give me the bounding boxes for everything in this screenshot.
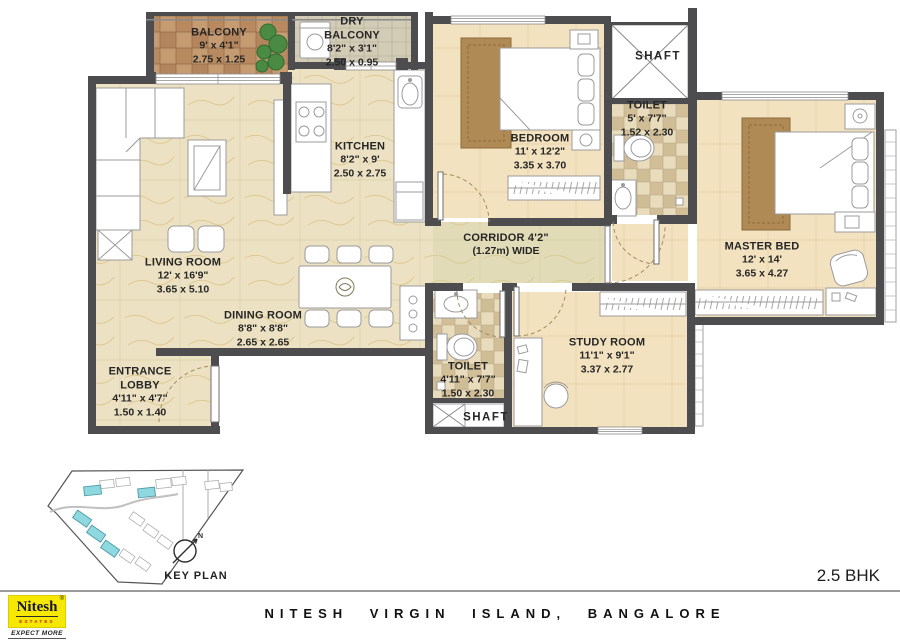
pillow	[852, 186, 868, 208]
master-bed-label: MASTER BED 12' x 14' 3.65 x 4.27	[725, 240, 800, 281]
kitchen-label: KITCHEN 8'2" x 9' 2.50 x 2.75	[334, 140, 387, 181]
room-name: DRY BALCONY	[314, 14, 390, 42]
door-leaf	[211, 366, 219, 422]
room-dim-metric: 3.37 x 2.77	[569, 363, 645, 376]
fridge-icon	[396, 182, 423, 220]
door-leaf	[605, 226, 610, 283]
dining-chair	[337, 246, 361, 263]
nitesh-logo: ® Nitesh ESTATES EXPECT MORE	[8, 595, 66, 639]
room-dim-imperial: 12' x 14'	[725, 254, 800, 267]
master-hall-floor	[612, 224, 688, 281]
room-dim-metric: 2.50 x 0.95	[314, 56, 390, 69]
corridor-width-note: (1.27m) WIDE	[463, 245, 549, 258]
room-dim-metric: 3.65 x 5.10	[145, 283, 221, 296]
dining-table	[299, 266, 391, 308]
logo-brand-text: Nitesh	[16, 600, 59, 617]
pouf	[168, 226, 194, 252]
key-plan-label: KEY PLAN	[164, 570, 227, 582]
room-dim-imperial: 11'1" x 9'1"	[569, 350, 645, 363]
room-dim-imperial: 5' x 7'7"	[621, 113, 674, 126]
balcony-label: BALCONY 9' x 4'1" 2.75 x 1.25	[191, 26, 247, 67]
corridor-label: CORRIDOR 4'2" (1.27m) WIDE	[463, 231, 549, 259]
room-dim-metric: 3.35 x 3.70	[511, 159, 570, 172]
room-dim-imperial: 8'2" x 9'	[334, 154, 387, 167]
room-dim-imperial: 12' x 16'9"	[145, 270, 221, 283]
registered-mark: ®	[60, 596, 64, 602]
room-dim-metric: 1.50 x 1.40	[99, 406, 181, 419]
dining-chair	[337, 310, 361, 327]
logo-tagline-text: EXPECT MORE	[8, 630, 66, 639]
pouf	[198, 226, 224, 252]
living-room-label: LIVING ROOM 12' x 16'9" 3.65 x 5.10	[145, 256, 221, 297]
floor-drain	[676, 198, 683, 205]
room-name: TOILET	[440, 360, 495, 374]
room-dim-metric: 2.75 x 1.25	[191, 53, 247, 66]
nightstand	[835, 212, 875, 232]
nightstand	[570, 30, 598, 49]
nitesh-logo-box: ® Nitesh ESTATES	[8, 595, 66, 628]
shaft-bottom-label: SHAFT	[463, 411, 509, 426]
wardrobe	[508, 176, 600, 200]
room-dim-imperial: 4'11" x 7'7"	[440, 374, 495, 387]
study-room-label: STUDY ROOM 11'1" x 9'1" 3.37 x 2.77	[569, 336, 645, 377]
nightstand	[572, 130, 600, 150]
dining-chair	[369, 310, 393, 327]
door-leaf	[500, 291, 505, 337]
dining-room-label: DINING ROOM 8'8" x 8'8" 2.65 x 2.65	[224, 309, 302, 350]
entrance-lobby-label: ENTRANCE LOBBY 4'11" x 4'7" 1.50 x 1.40	[99, 364, 181, 419]
footer-divider	[0, 590, 900, 592]
toilet-bottom-label: TOILET 4'11" x 7'7" 1.50 x 2.30	[440, 360, 495, 401]
room-dim-metric: 1.52 x 2.30	[621, 126, 674, 139]
floor-plan-drawing: N	[0, 0, 900, 640]
room-dim-metric: 3.65 x 4.27	[725, 267, 800, 280]
room-name: ENTRANCE LOBBY	[99, 364, 181, 392]
floor-plan-page: N BALCONY 9' x 4'1" 2.75 x 1.25 DRY BALC…	[0, 0, 900, 640]
pillow	[852, 162, 868, 184]
bedroom-label: BEDROOM 11' x 12'2" 3.35 x 3.70	[511, 132, 570, 173]
room-name: DINING ROOM	[224, 309, 302, 323]
room-name: KITCHEN	[334, 140, 387, 154]
shaft-top-label: SHAFT	[635, 50, 681, 65]
key-plan: N	[48, 470, 243, 584]
dining-chair	[369, 246, 393, 263]
sliding-door	[156, 74, 280, 84]
room-dim-metric: 1.50 x 2.30	[440, 387, 495, 400]
pillow	[578, 54, 594, 76]
nightstand	[845, 104, 875, 129]
toilet-top-label: TOILET 5' x 7'7" 1.52 x 2.30	[621, 99, 674, 140]
room-dim-imperial: 4'11" x 4'7"	[99, 393, 181, 406]
dining-chair	[305, 246, 329, 263]
room-name: MASTER BED	[725, 240, 800, 254]
window	[451, 16, 545, 24]
project-title: NITESH VIRGIN ISLAND, BANGALORE	[90, 606, 900, 621]
north-label: N	[198, 533, 203, 540]
unit-type-label: 2.5 BHK	[817, 566, 880, 586]
wardrobe	[695, 290, 823, 315]
room-dim-imperial: 8'8" x 8'8"	[224, 323, 302, 336]
pillow	[578, 103, 594, 125]
dry-balcony-label: DRY BALCONY 8'2" x 3'1" 2.50 x 0.95	[314, 14, 390, 69]
wc-icon	[437, 334, 477, 360]
room-name: SHAFT	[463, 412, 509, 424]
pillow	[852, 138, 868, 160]
room-dim-imperial: 8'2" x 3'1"	[314, 43, 390, 56]
door-leaf	[514, 287, 519, 336]
room-name: BEDROOM	[511, 132, 570, 146]
window	[722, 92, 848, 100]
door-leaf	[438, 172, 443, 220]
pillow	[578, 79, 594, 101]
window	[598, 427, 642, 434]
room-name: LIVING ROOM	[145, 256, 221, 270]
room-name: STUDY ROOM	[569, 336, 645, 350]
room-name: TOILET	[621, 99, 674, 113]
room-dim-metric: 2.65 x 2.65	[224, 336, 302, 349]
room-dim-metric: 2.50 x 2.75	[334, 167, 387, 180]
room-name: BALCONY	[191, 26, 247, 40]
logo-sub-text: ESTATES	[9, 619, 65, 624]
room-name: SHAFT	[635, 51, 681, 63]
wardrobe	[600, 292, 686, 316]
door-leaf	[654, 220, 659, 264]
dining-chair	[305, 310, 329, 327]
room-dim-imperial: 9' x 4'1"	[191, 40, 247, 53]
room-dim-imperial: 11' x 12'2"	[511, 146, 570, 159]
room-name: CORRIDOR 4'2"	[463, 231, 549, 245]
study-ledge	[695, 320, 703, 426]
